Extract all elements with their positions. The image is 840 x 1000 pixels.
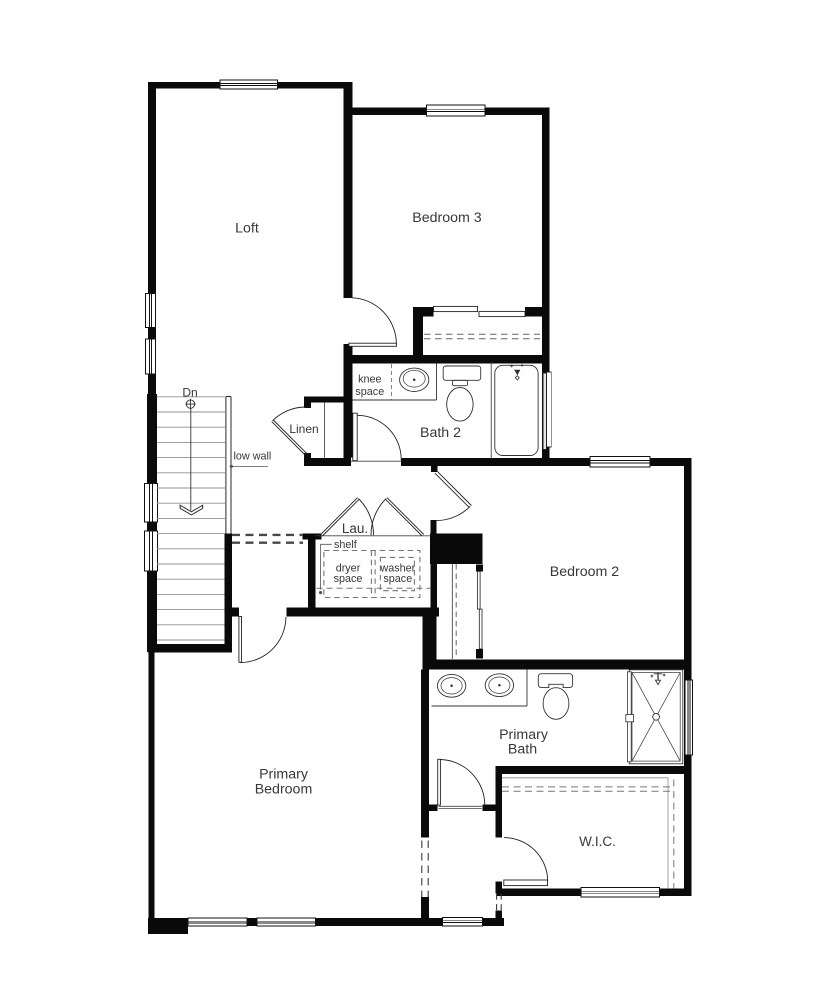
svg-text:Linen: Linen — [289, 422, 318, 436]
svg-text:Bedroom: Bedroom — [255, 782, 313, 798]
svg-text:low wall: low wall — [234, 451, 272, 463]
svg-text:Lau.: Lau. — [342, 521, 368, 536]
svg-text:shelf: shelf — [334, 539, 358, 551]
svg-text:space: space — [334, 573, 363, 585]
svg-text:space: space — [383, 573, 412, 585]
svg-text:Bedroom 3: Bedroom 3 — [412, 210, 482, 226]
svg-text:Loft: Loft — [235, 221, 259, 237]
svg-text:Bedroom 2: Bedroom 2 — [550, 564, 620, 580]
svg-text:Primary: Primary — [259, 767, 309, 783]
svg-text:Bath: Bath — [508, 742, 537, 758]
svg-text:Dn: Dn — [182, 386, 197, 400]
svg-text:knee: knee — [358, 374, 381, 386]
svg-text:W.I.C.: W.I.C. — [579, 834, 616, 849]
svg-text:Bath 2: Bath 2 — [420, 425, 461, 441]
svg-text:space: space — [355, 386, 384, 398]
